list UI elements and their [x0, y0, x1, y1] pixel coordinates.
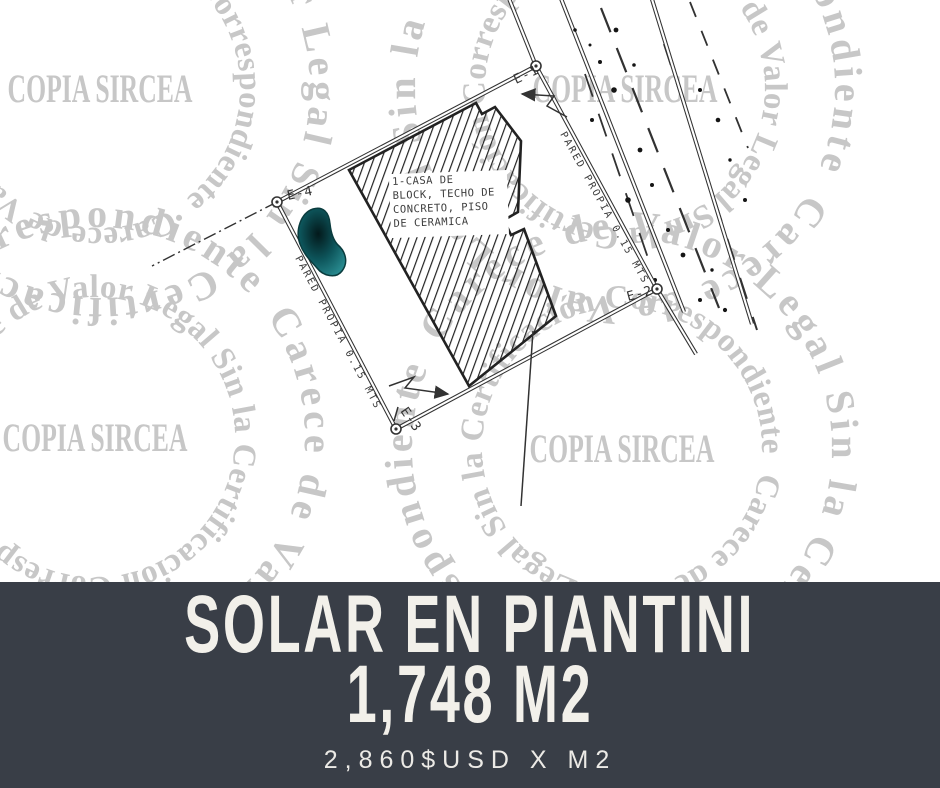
building-label-box: 1-CASA DE BLOCK, TECHO DE CONCRETO, PISO…	[389, 170, 509, 238]
listing-area-text: 1,748 M2	[347, 660, 594, 730]
watermark-ring-text: Carece de Valor Legal Sin la Certificaci…	[0, 0, 330, 318]
watermark-center-text: COPIA SIRCEA	[3, 415, 188, 460]
wall-label-left: PARED PROPIA 0.15 MTS	[292, 254, 383, 412]
corner-marker-e2	[652, 284, 662, 294]
building-label-line: 1-CASA DE	[392, 174, 454, 188]
corner-marker-e3	[391, 424, 401, 434]
survey-plan-drawing: COPIA SIRCEA Carece de Valor Legal Sin l…	[0, 0, 940, 582]
watermark-center-text: COPIA SIRCEA	[8, 66, 193, 111]
watermark-center-text: COPIA SIRCEA	[533, 66, 718, 111]
listing-title-line2: 1,748 M2	[283, 660, 657, 730]
price-banner: SOLAR EN PIANTINI 1,748 M2 2,860$USD X M…	[0, 582, 940, 788]
corner-marker-e4	[272, 197, 282, 207]
boundary-extension-line	[508, 0, 536, 66]
watermark-center-text: COPIA SIRCEA	[530, 426, 715, 471]
listing-price: 2,860$USD X M2	[324, 746, 617, 775]
listing-flyer: COPIA SIRCEA Carece de Valor Legal Sin l…	[0, 0, 940, 788]
listing-price-text: 2,860$USD X M2	[324, 746, 617, 774]
